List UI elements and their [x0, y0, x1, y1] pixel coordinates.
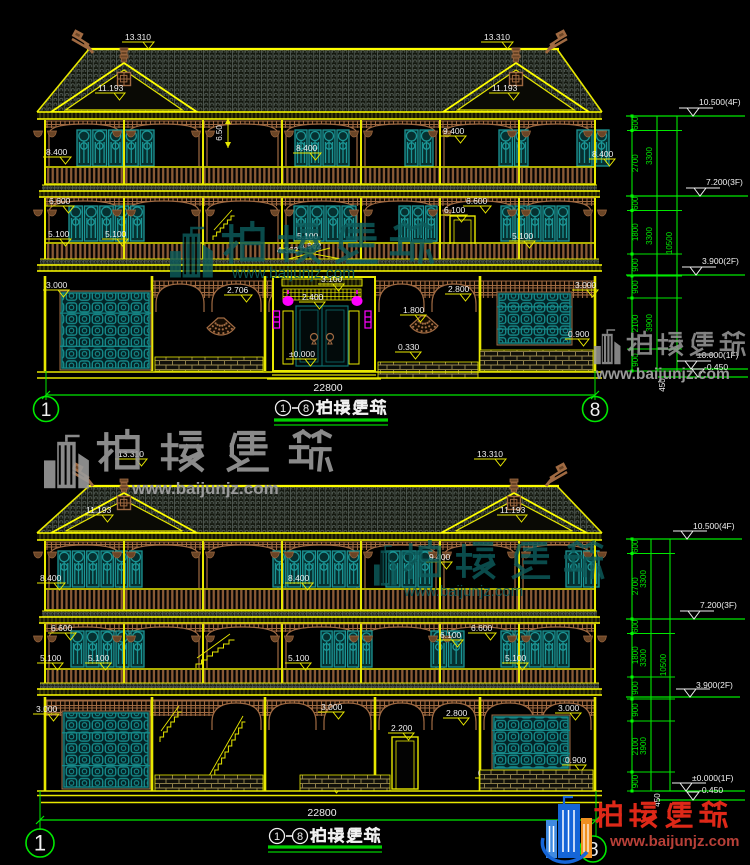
svg-text:900: 900 [631, 280, 640, 294]
svg-text:5.100: 5.100 [48, 229, 70, 239]
svg-text:6.600: 6.600 [466, 196, 488, 206]
svg-text:10.500(4F): 10.500(4F) [699, 97, 741, 107]
svg-text:9.400: 9.400 [443, 126, 465, 136]
svg-text:8: 8 [303, 403, 309, 415]
svg-text:3.900(2F): 3.900(2F) [702, 256, 739, 266]
svg-text:6.600: 6.600 [49, 196, 71, 206]
svg-text:6.50: 6.50 [215, 125, 224, 141]
svg-text:900: 900 [631, 258, 640, 272]
svg-text:11.193: 11.193 [86, 505, 112, 515]
svg-text:7.200(3F): 7.200(3F) [700, 600, 737, 610]
svg-text:22800: 22800 [307, 807, 336, 819]
svg-text:3.900(2F): 3.900(2F) [696, 680, 733, 690]
svg-text:2.400: 2.400 [302, 292, 324, 302]
svg-text:600: 600 [631, 116, 640, 130]
svg-text:5.100: 5.100 [40, 653, 62, 663]
svg-text:13.310: 13.310 [484, 32, 510, 42]
svg-text:1.800: 1.800 [403, 305, 425, 315]
svg-text:3900: 3900 [639, 737, 648, 755]
svg-text:5.100: 5.100 [88, 653, 110, 663]
svg-text:0.330: 0.330 [398, 342, 420, 352]
svg-text:8.400: 8.400 [296, 143, 318, 153]
svg-text:2.800: 2.800 [446, 708, 468, 718]
svg-text:0.900: 0.900 [568, 329, 590, 339]
svg-text:900: 900 [631, 703, 640, 717]
svg-text:13.310: 13.310 [477, 449, 503, 459]
svg-text:3300: 3300 [639, 649, 648, 667]
svg-text:3300: 3300 [639, 570, 648, 588]
svg-text:11.193: 11.193 [98, 83, 124, 93]
svg-text:6.100: 6.100 [440, 630, 462, 640]
svg-text:2.706: 2.706 [227, 285, 249, 295]
svg-text:600: 600 [631, 539, 640, 553]
svg-text:11.193: 11.193 [500, 505, 526, 515]
svg-text:3.000: 3.000 [558, 703, 580, 713]
svg-text:www.baijunjz.com: www.baijunjz.com [231, 265, 355, 282]
svg-text:1: 1 [41, 400, 52, 421]
svg-text:900: 900 [631, 774, 640, 788]
svg-text:3.000: 3.000 [575, 280, 597, 290]
svg-text:2700: 2700 [631, 154, 640, 172]
svg-text:3.000: 3.000 [321, 702, 343, 712]
svg-text:7.200(3F): 7.200(3F) [706, 177, 743, 187]
svg-text:10500: 10500 [659, 653, 668, 676]
svg-text:3.000: 3.000 [36, 704, 58, 714]
svg-text:2.200: 2.200 [391, 723, 413, 733]
svg-text:6.600: 6.600 [51, 623, 73, 633]
svg-text:www.baijunjz.com: www.baijunjz.com [595, 366, 730, 383]
svg-text:3300: 3300 [645, 227, 654, 245]
svg-text:5.100: 5.100 [505, 653, 527, 663]
svg-text:www.baijunjz.com: www.baijunjz.com [609, 833, 739, 850]
svg-text:8: 8 [297, 831, 303, 843]
svg-text:600: 600 [631, 619, 640, 633]
svg-text:www.baijunjz.com: www.baijunjz.com [131, 479, 279, 498]
svg-text:10500: 10500 [665, 231, 674, 254]
svg-text:3900: 3900 [645, 314, 654, 332]
svg-text:0.900: 0.900 [565, 755, 587, 765]
svg-text:8.400: 8.400 [40, 573, 62, 583]
svg-text:22800: 22800 [313, 382, 342, 394]
svg-text:1800: 1800 [631, 223, 640, 241]
svg-text:3.000: 3.000 [46, 280, 68, 290]
svg-text:5.100: 5.100 [105, 229, 127, 239]
svg-text:±0.000: ±0.000 [289, 349, 315, 359]
svg-text:3300: 3300 [645, 147, 654, 165]
svg-text:2.800: 2.800 [448, 284, 470, 294]
svg-text:1: 1 [280, 403, 286, 415]
svg-text:8.400: 8.400 [46, 147, 68, 157]
svg-text:5.100: 5.100 [512, 231, 534, 241]
svg-text:2100: 2100 [631, 314, 640, 332]
svg-text:www.baijunjz.com: www.baijunjz.com [403, 583, 523, 600]
svg-text:1: 1 [274, 831, 280, 843]
svg-text:6.600: 6.600 [471, 623, 493, 633]
svg-text:11.193: 11.193 [492, 83, 518, 93]
svg-text:8.400: 8.400 [592, 149, 614, 159]
svg-text:900: 900 [631, 681, 640, 695]
svg-text:-0.450: -0.450 [699, 785, 723, 795]
svg-text:600: 600 [631, 196, 640, 210]
svg-text:±0.000(1F): ±0.000(1F) [692, 773, 734, 783]
svg-text:8.400: 8.400 [288, 573, 310, 583]
svg-text:1: 1 [34, 831, 46, 856]
svg-text:5.100: 5.100 [288, 653, 310, 663]
svg-text:8: 8 [590, 400, 601, 421]
svg-text:10.500(4F): 10.500(4F) [693, 521, 735, 531]
svg-text:6.100: 6.100 [444, 205, 466, 215]
svg-text:13.310: 13.310 [125, 32, 151, 42]
